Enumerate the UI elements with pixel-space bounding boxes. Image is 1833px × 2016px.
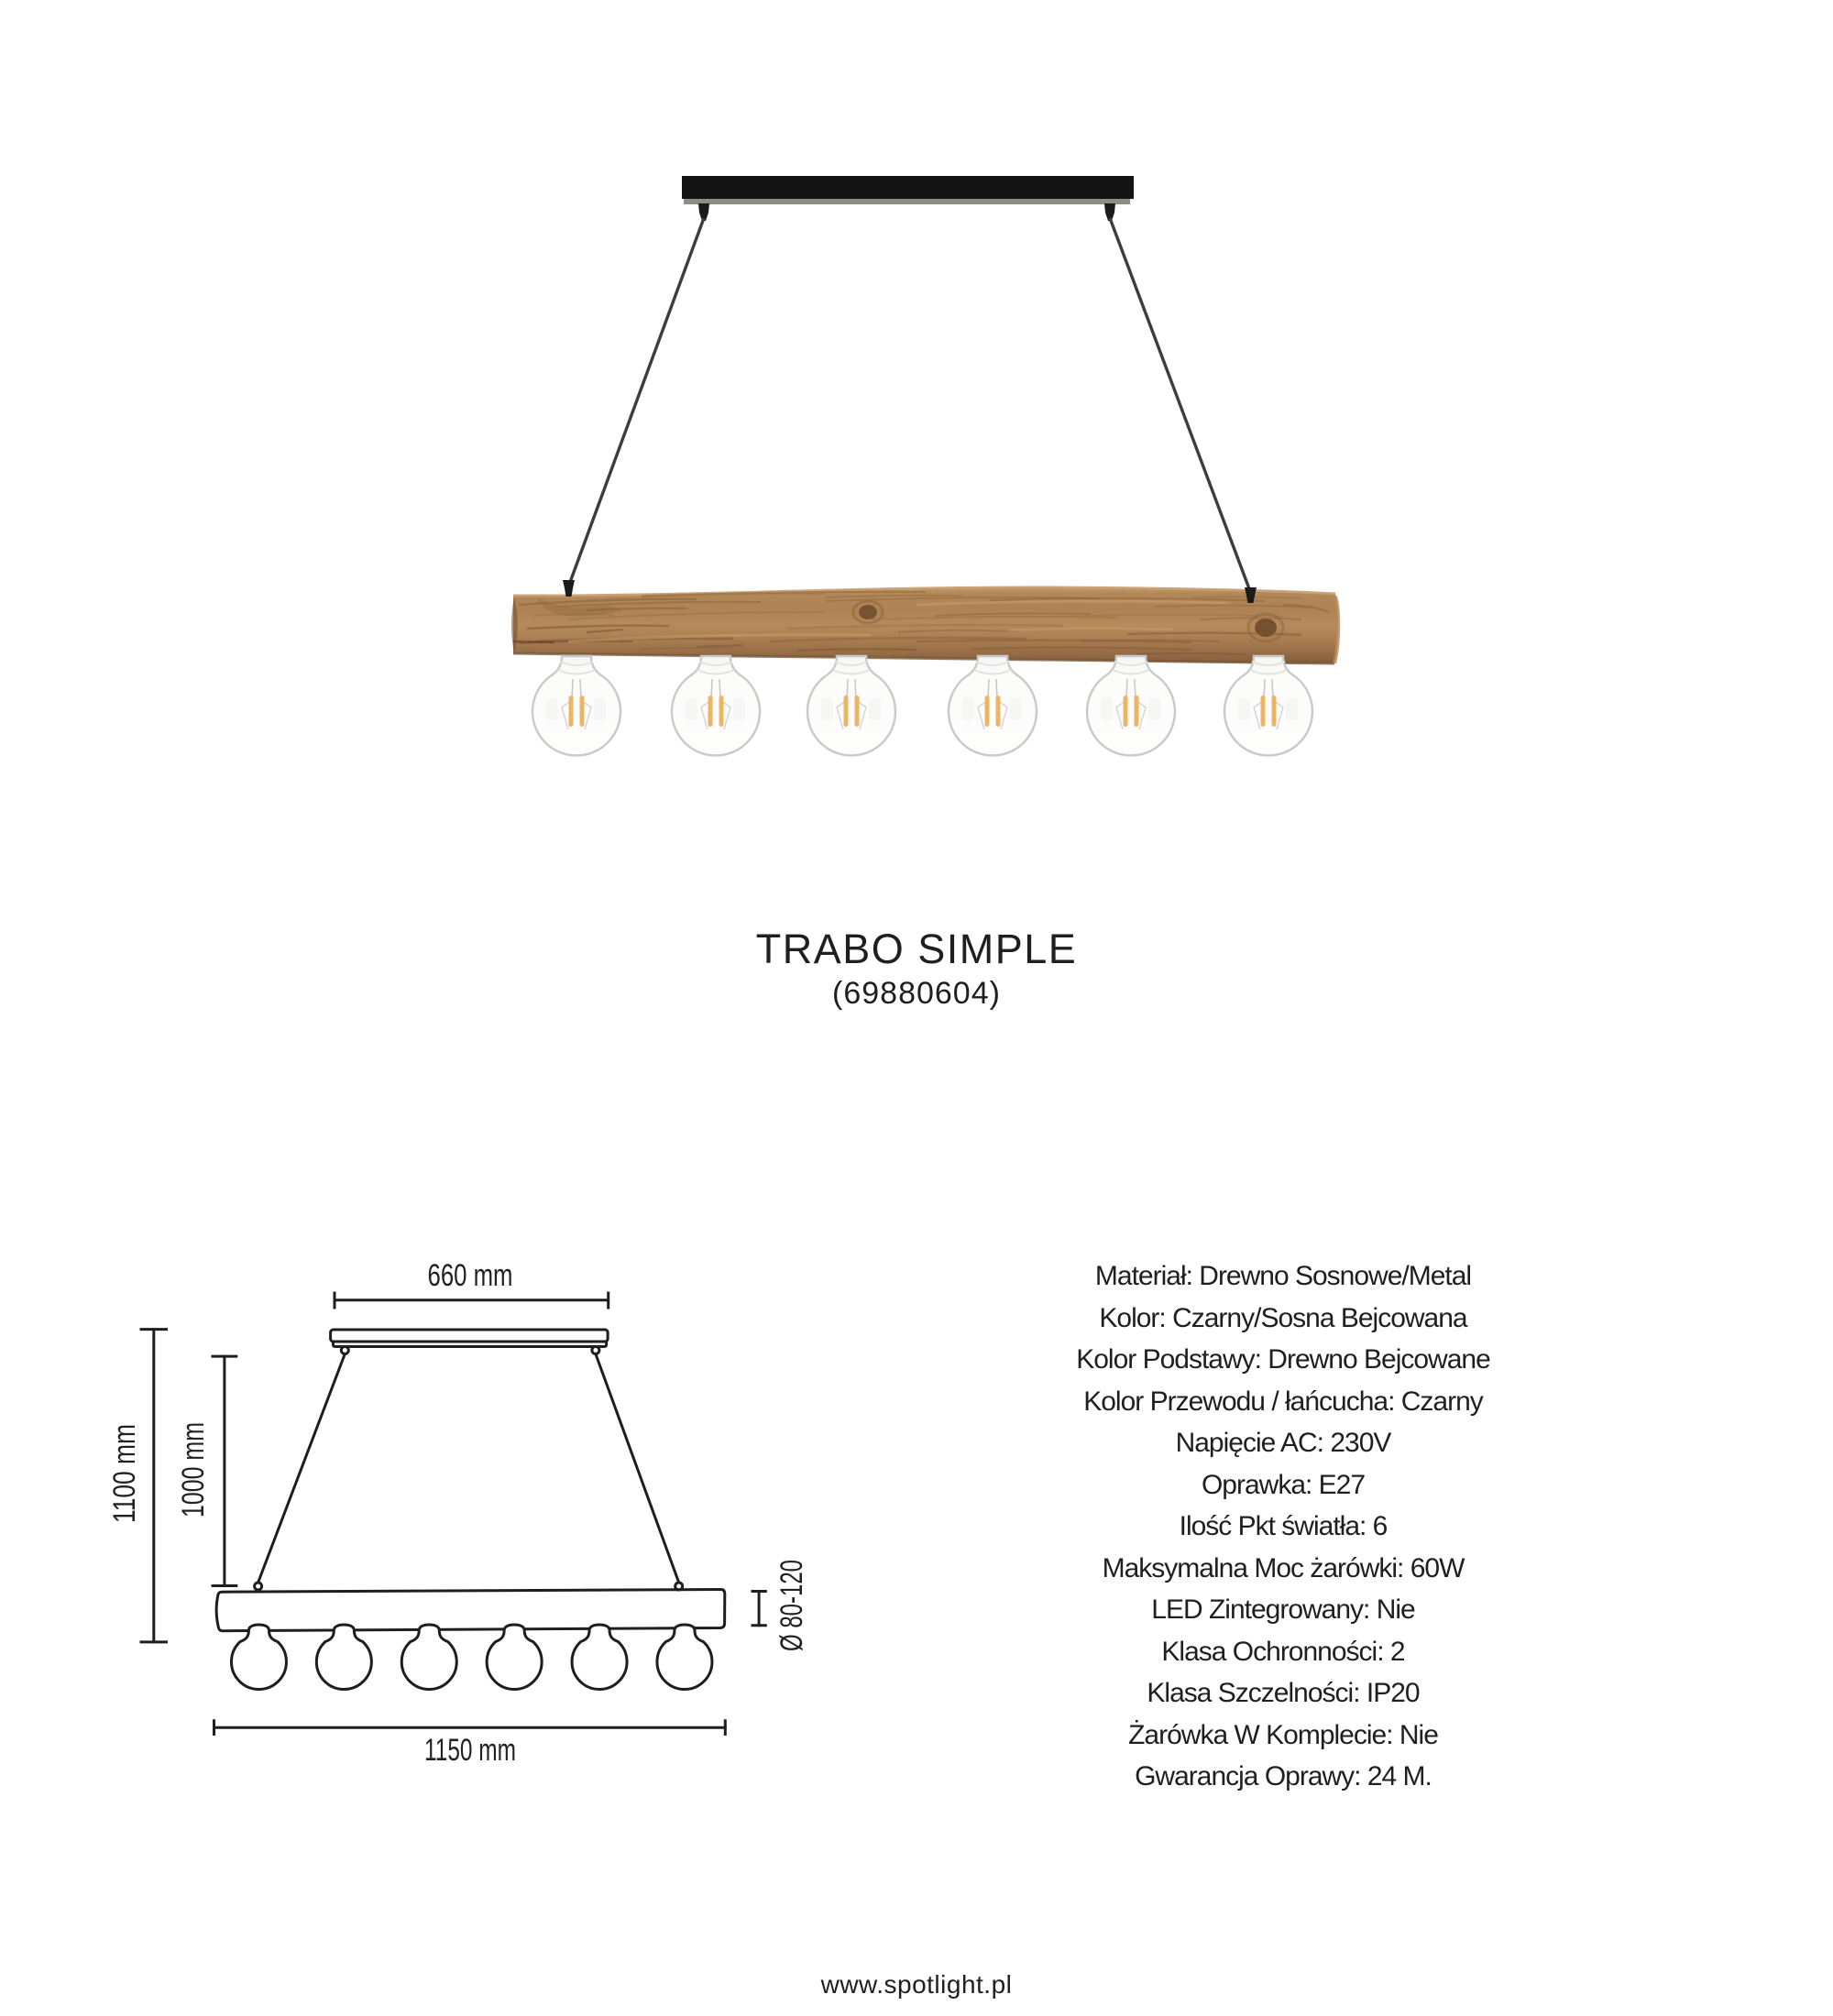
svg-text:660 mm: 660 mm (428, 1258, 513, 1293)
svg-text:1150 mm: 1150 mm (424, 1733, 516, 1768)
svg-text:1100 mm: 1100 mm (107, 1424, 142, 1523)
svg-text:1000 mm: 1000 mm (176, 1422, 211, 1517)
